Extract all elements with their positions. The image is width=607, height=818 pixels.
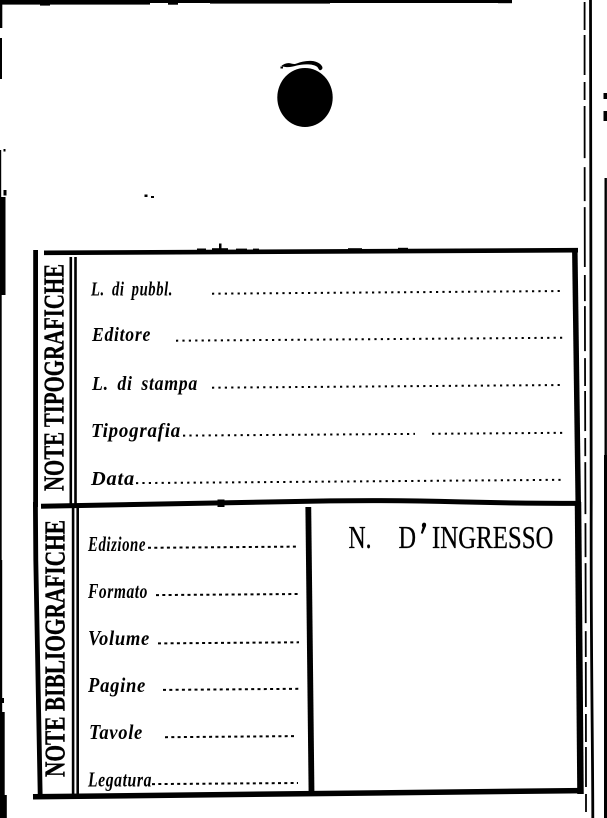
svg-text:Data: Data bbox=[90, 468, 135, 490]
svg-text:NOTE BIBLIOGRAFICHE: NOTE BIBLIOGRAFICHE bbox=[38, 520, 71, 777]
svg-text:INGRESSO: INGRESSO bbox=[432, 519, 554, 555]
svg-text:Formato: Formato bbox=[87, 579, 148, 603]
svg-text:Tavole: Tavole bbox=[89, 720, 143, 744]
svg-text:N.: N. bbox=[349, 519, 372, 555]
svg-text:Editore: Editore bbox=[91, 324, 151, 346]
svg-text:Edizione: Edizione bbox=[87, 532, 146, 556]
svg-text:L. di pubbl.: L. di pubbl. bbox=[90, 278, 173, 300]
svg-text:Legatura: Legatura bbox=[87, 767, 152, 791]
svg-text:NOTE TIPOGRAFICHE: NOTE TIPOGRAFICHE bbox=[37, 264, 70, 491]
svg-text:Pagine: Pagine bbox=[87, 673, 146, 697]
svg-text:D: D bbox=[399, 519, 417, 555]
svg-text:Volume: Volume bbox=[88, 626, 150, 650]
svg-text:L. di stampa: L. di stampa bbox=[91, 373, 198, 395]
svg-text:Tipografia: Tipografia bbox=[91, 420, 181, 442]
